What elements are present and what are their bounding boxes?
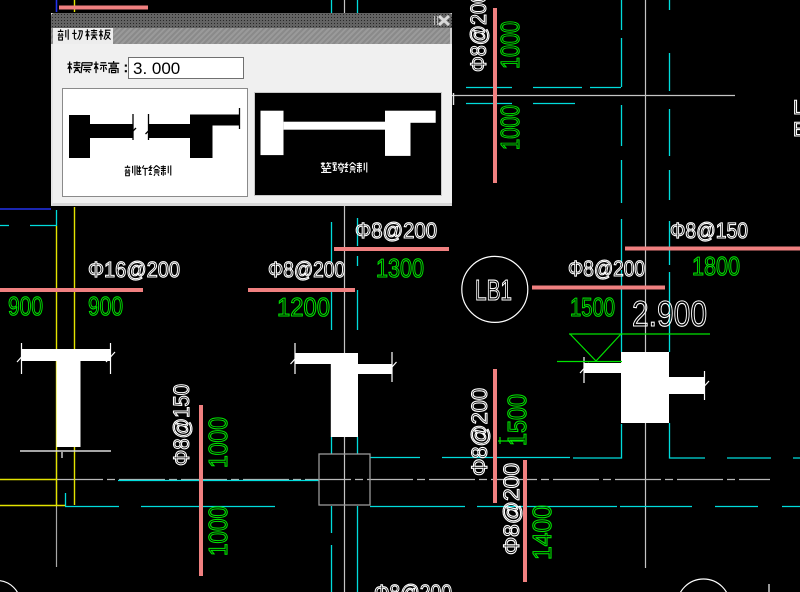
svg-text:Φ16@200: Φ16@200	[88, 257, 180, 282]
svg-text:LB1: LB1	[475, 275, 512, 307]
svg-text:1800: 1800	[692, 251, 740, 281]
svg-text:Φ8@200: Φ8@200	[374, 580, 452, 592]
svg-text:Φ8@200: Φ8@200	[268, 257, 345, 282]
svg-text:Φ8@200: Φ8@200	[499, 463, 524, 555]
svg-text:Φ8@200: Φ8@200	[355, 218, 437, 243]
svg-text:900: 900	[88, 291, 123, 321]
svg-text:Φ8@150: Φ8@150	[670, 218, 748, 243]
svg-text:1000: 1000	[203, 506, 233, 556]
svg-text:B: B	[793, 119, 800, 141]
svg-text:1000: 1000	[495, 21, 525, 69]
svg-text:900: 900	[8, 291, 43, 321]
svg-text:2.900: 2.900	[632, 293, 707, 334]
svg-text:1000: 1000	[203, 417, 233, 468]
svg-text:1000: 1000	[495, 105, 525, 150]
svg-text:Φ8@200: Φ8@200	[466, 0, 491, 72]
svg-text:1200: 1200	[277, 292, 330, 322]
svg-text:1500: 1500	[570, 292, 615, 322]
svg-text:Φ8@200: Φ8@200	[467, 388, 492, 476]
svg-text:L: L	[793, 97, 800, 119]
svg-text:Φ8@200: Φ8@200	[568, 256, 645, 281]
svg-text:1500: 1500	[502, 394, 532, 446]
svg-text:1400: 1400	[527, 505, 557, 560]
svg-text:1300: 1300	[376, 253, 424, 283]
svg-text:Φ8@150: Φ8@150	[169, 384, 194, 466]
